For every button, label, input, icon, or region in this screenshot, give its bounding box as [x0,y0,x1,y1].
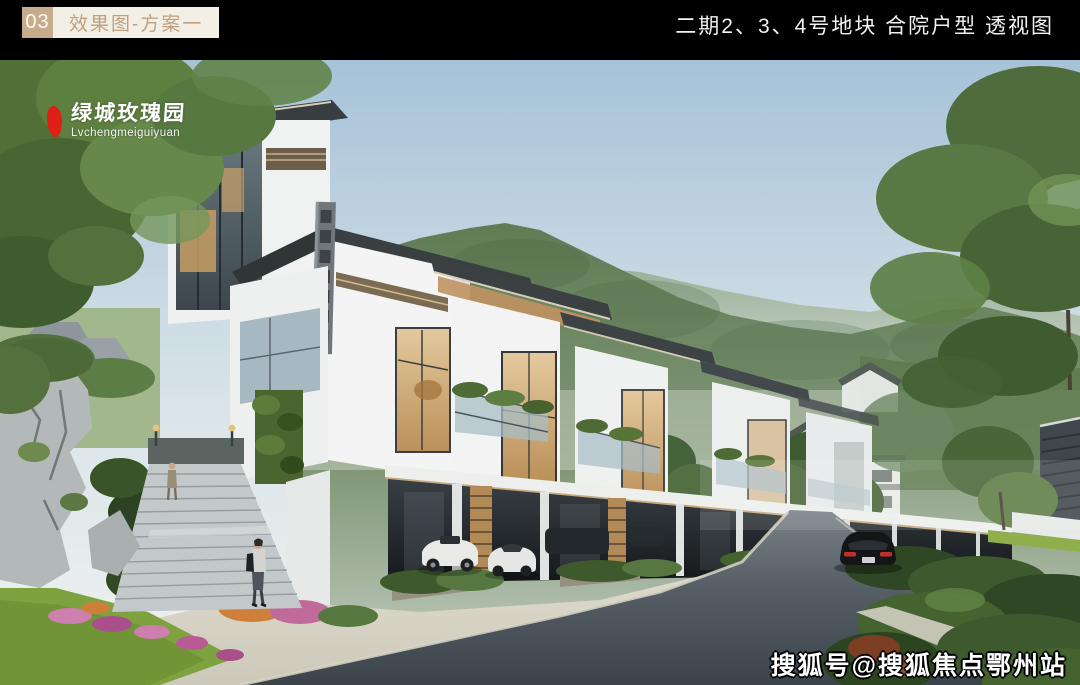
slide-title: 二期2、3、4号地块 合院户型 透视图 [675,10,1054,40]
logo-brush-icon [46,106,63,138]
watermark: 搜狐号@搜狐焦点鄂州站 [771,646,1067,682]
architectural-rendering [0,60,1080,685]
haze [700,460,1080,530]
presentation-slide: 03 效果图-方案一 二期2、3、4号地块 合院户型 透视图 [0,0,1080,685]
title-bar: 03 效果图-方案一 二期2、3、4号地块 合院户型 透视图 [0,0,1080,60]
garage-dark-car [545,528,609,554]
logo-text: 绿城玫瑰园 Lvchengmeiguiyuan [71,103,186,139]
logo-name-en: Lvchengmeiguiyuan [71,127,186,139]
section-number-badge: 03 [22,7,53,38]
logo-name-cn: 绿城玫瑰园 [70,103,187,125]
brand-logo: 绿城玫瑰园 Lvchengmeiguiyuan [47,103,186,139]
section-title: 效果图-方案一 [53,7,219,38]
vine-wall [252,390,304,484]
rendering-canvas [0,60,1080,685]
garage-dark-car-2 [630,526,664,546]
section-header: 03 效果图-方案一 [22,7,219,38]
